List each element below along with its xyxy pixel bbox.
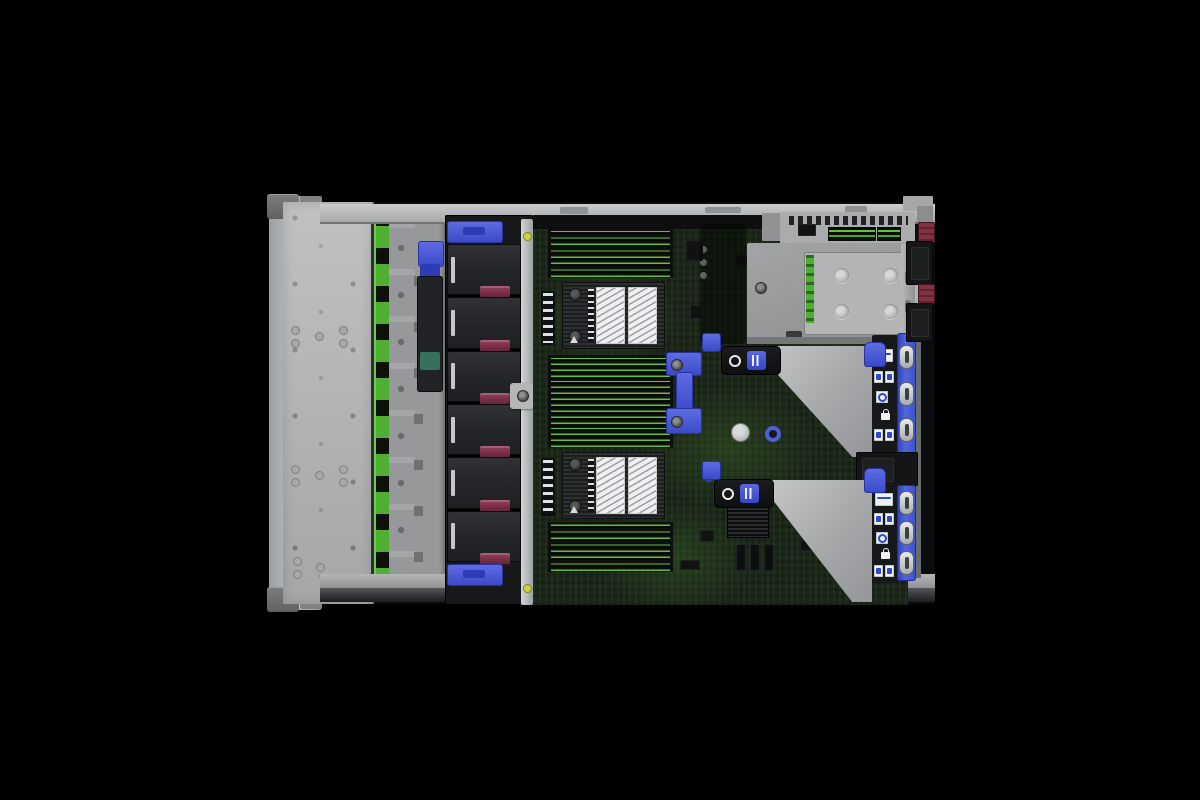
cpu-service-label xyxy=(596,287,625,344)
handle-grip xyxy=(463,227,485,235)
panel-hole xyxy=(315,332,324,341)
riser-corner-latch xyxy=(702,333,721,352)
cmos-battery xyxy=(731,423,750,442)
fan-cage-handle-bottom xyxy=(447,564,503,586)
riser-thumb-latch xyxy=(899,491,914,515)
riser-guide-bracket-spine xyxy=(676,372,693,412)
panel-hole xyxy=(315,471,324,480)
bracket-screw xyxy=(671,416,683,428)
rail-keying-dot xyxy=(523,232,532,241)
cpu-service-labels xyxy=(596,287,657,344)
unlock-icon xyxy=(881,413,890,420)
fan-module-1 xyxy=(447,244,521,295)
dimm-bank-front xyxy=(548,228,673,278)
fan-label xyxy=(451,470,455,496)
riser-service-label xyxy=(874,371,883,383)
panel-hole xyxy=(339,465,348,474)
riser-cage-2-latch-strip xyxy=(897,485,916,581)
cpu1-heatsink xyxy=(562,282,665,349)
riser-service-label xyxy=(885,429,894,441)
rear-bracket-left xyxy=(762,213,782,241)
riser-slot-connector xyxy=(828,227,876,241)
rail-detail xyxy=(560,207,588,214)
fan-label xyxy=(451,523,455,549)
psu-handle-2 xyxy=(918,284,935,304)
riser-thumb-latch xyxy=(899,551,914,575)
alignment-triangle xyxy=(570,336,578,343)
panel-hole xyxy=(339,339,348,348)
cable-retainer-accent xyxy=(420,352,440,370)
riser-service-label xyxy=(876,532,888,544)
riser-thumb-latch xyxy=(899,345,914,369)
riser-service-label xyxy=(874,429,883,441)
fan-label xyxy=(451,310,455,336)
riser-cage-1-release-bar xyxy=(721,346,781,375)
rail-keying-dot xyxy=(523,584,532,593)
blue-thumbscrew-standoff xyxy=(765,426,781,442)
alignment-triangle xyxy=(570,506,578,513)
riser-release-button xyxy=(747,351,766,370)
board-connector xyxy=(764,544,774,571)
ocp-hole xyxy=(834,268,849,283)
fan-module-4 xyxy=(447,404,521,455)
lock-icon xyxy=(722,488,734,500)
unlock-icon xyxy=(881,552,890,559)
heatsink-screw xyxy=(569,288,582,301)
fan-module-6 xyxy=(447,511,521,562)
riser-service-label xyxy=(885,565,894,577)
bracket-screw xyxy=(671,359,683,371)
chipset-heatsink xyxy=(727,505,769,538)
panel-hole xyxy=(291,478,300,487)
panel-hole xyxy=(293,557,302,566)
rear-io-block xyxy=(906,241,933,285)
power-connector-strip xyxy=(541,458,555,516)
riser-service-label xyxy=(885,371,894,383)
panel-hole xyxy=(293,570,302,579)
panel-hole xyxy=(291,339,300,348)
cpu2-heatsink xyxy=(562,452,665,519)
riser-cage-1-latch-strip xyxy=(897,333,916,454)
dimm-slot xyxy=(551,442,670,448)
panel-hole xyxy=(339,326,348,335)
riser-cage-2-label-bar xyxy=(872,483,898,583)
riser-cap-latch xyxy=(864,342,886,367)
cpu-info-strip xyxy=(588,459,594,512)
tray-shadow xyxy=(700,224,746,344)
fan-module-2 xyxy=(447,297,521,348)
board-connector xyxy=(750,544,760,571)
rail-screw xyxy=(517,390,529,402)
riser-service-label xyxy=(874,513,883,525)
rear-dip-block xyxy=(798,224,816,236)
heatsink-screw xyxy=(569,458,582,471)
cable-retainer-bar xyxy=(417,276,443,392)
fan-cage-handle-top xyxy=(447,221,503,243)
riser-guide-bracket-bottom xyxy=(666,408,702,434)
handle-grip xyxy=(463,570,485,578)
panel-hole xyxy=(316,563,325,572)
cable-retainer-brackets xyxy=(389,222,415,590)
smd-chip xyxy=(680,560,700,570)
rail-detail xyxy=(705,207,741,213)
tray-screw xyxy=(755,282,767,294)
fan-label xyxy=(451,417,455,443)
riser-service-label xyxy=(876,391,888,403)
riser-service-label xyxy=(885,513,894,525)
riser-thumb-latch xyxy=(899,418,914,442)
rear-io-block xyxy=(906,303,933,342)
panel-hole xyxy=(291,326,300,335)
drive-cage-top-panel xyxy=(283,202,374,604)
dimm-slot xyxy=(551,566,670,572)
riser-corner-latch xyxy=(702,461,721,480)
ocp-hole xyxy=(883,268,898,283)
riser-slot-connector xyxy=(877,227,901,241)
riser-thumb-latch xyxy=(899,521,914,545)
riser-service-label xyxy=(874,565,883,577)
psu-handle-1 xyxy=(918,222,935,243)
server-photo xyxy=(0,0,1200,800)
power-connector-strip xyxy=(541,291,555,345)
riser-service-label xyxy=(875,493,893,506)
fan-module-5 xyxy=(447,457,521,508)
fan-cage-rail xyxy=(521,219,533,605)
cpu-service-labels xyxy=(596,457,657,514)
cpu-service-label xyxy=(596,457,625,514)
lock-icon xyxy=(729,355,741,367)
io-inner xyxy=(911,247,929,280)
panel-hole xyxy=(339,478,348,487)
riser-thumb-latch xyxy=(899,382,914,406)
ocp-hole xyxy=(834,304,849,319)
fan-label xyxy=(451,257,455,283)
ocp-card-edge xyxy=(806,255,814,323)
board-connector xyxy=(736,544,746,571)
riser-release-button xyxy=(740,484,759,503)
dimm-slot xyxy=(551,272,670,278)
fan-label xyxy=(451,363,455,389)
ocp-hole xyxy=(883,304,898,319)
rear-top-bracket xyxy=(917,206,933,222)
panel-hole xyxy=(291,465,300,474)
cpu-service-label xyxy=(628,457,657,514)
smd-chip xyxy=(700,530,714,542)
riser-cage-2-release-bar xyxy=(714,479,774,508)
dimm-bank-middle xyxy=(548,355,673,448)
io-inner xyxy=(911,309,929,337)
cpu-info-strip xyxy=(588,289,594,342)
riser-cap-latch xyxy=(864,468,886,493)
dimm-bank-rear xyxy=(548,522,673,572)
cpu-service-label xyxy=(628,287,657,344)
